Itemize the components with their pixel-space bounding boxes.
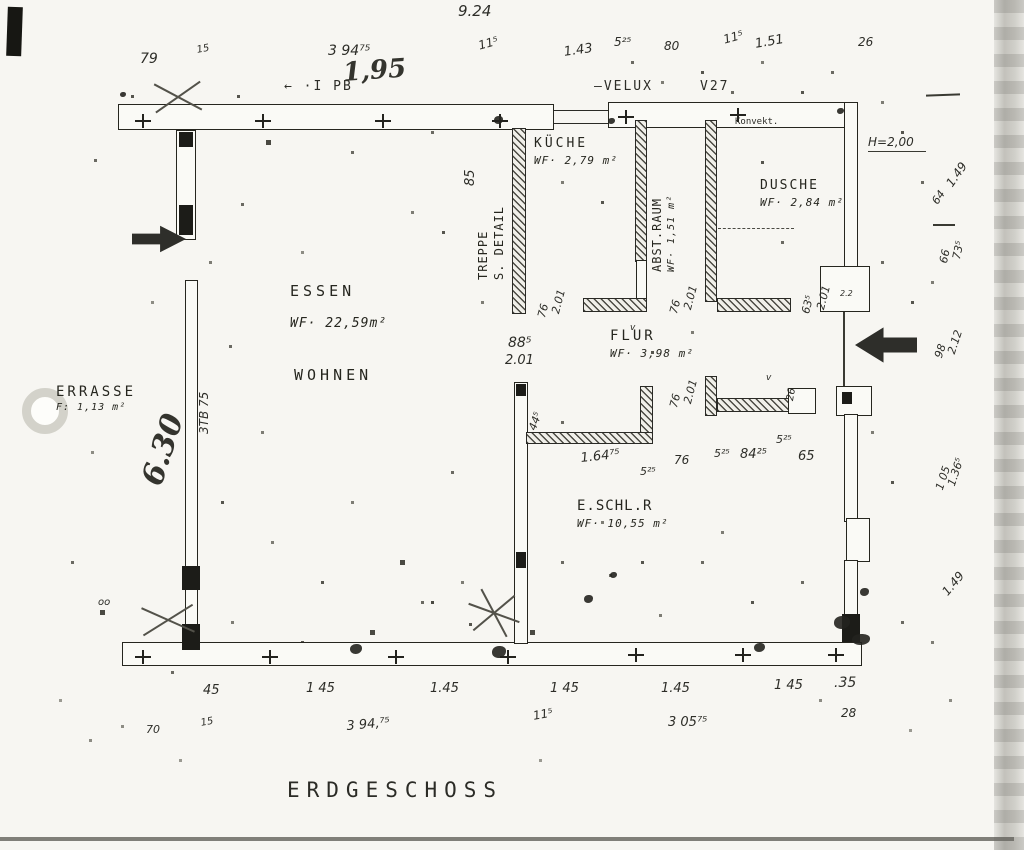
dimension-label: 1.64⁷⁵ (580, 448, 621, 465)
room-label-treppe: TREPPE S. DETAIL (476, 206, 506, 280)
dimension-label: 79 (140, 52, 158, 66)
room-name-essen: ESSEN (290, 282, 387, 300)
x-mark (152, 78, 204, 114)
cross-mark (375, 114, 391, 128)
dimension-label: 70 (146, 724, 160, 735)
scan-corner-mark (6, 7, 23, 56)
room-area-kueche: WF· 2,79 m² (534, 154, 618, 167)
wall-right-middle (844, 414, 858, 522)
dimension-label: 5²⁵ (614, 36, 631, 48)
wall-flur-br-vert (705, 376, 717, 416)
room-area-essen: WF· 22,59m² (290, 316, 387, 331)
dimension-label: 2.01 (682, 378, 699, 405)
dimension-label: 1.45 (430, 682, 459, 695)
wall-cap (516, 552, 526, 568)
scribble-mark (468, 588, 520, 636)
wall-flur-br (717, 398, 789, 412)
wall-kueche-foot (636, 260, 647, 300)
cross-mark (628, 648, 644, 662)
dimension-label: H=2,00 (868, 136, 914, 148)
cross-mark (735, 648, 751, 662)
room-area-flur: WF· 3,98 m² (610, 347, 694, 360)
wall-cap (516, 384, 526, 396)
leader-line (868, 151, 926, 152)
dimension-label: 11⁵ (722, 29, 745, 46)
room-name-flur: FLUR (610, 328, 694, 344)
dimension-label: —VELUX (594, 80, 653, 93)
dimension-label: 1.43 (563, 42, 593, 59)
dimension-label: 64 (930, 189, 947, 207)
x-mark (140, 598, 196, 640)
room-label-eschlr: E.SCHL.R WF· 10,55 m² (577, 498, 668, 530)
dimension-label: 1 45 (306, 682, 335, 695)
dimension-label: 15 (196, 44, 210, 56)
dimension-label: 1 45 (774, 679, 803, 692)
room-area-abstraum: WF· 1,51 m² (666, 195, 677, 272)
room-label-kueche: KÜCHE WF· 2,79 m² (534, 136, 618, 167)
scan-noise (0, 0, 1, 1)
dimension-label: 3TB 75 (198, 392, 210, 434)
dimension-label: 11⁵ (532, 707, 554, 722)
scan-bottom-edge (0, 837, 1014, 841)
room-label-wohnen: WOHNEN (294, 366, 372, 384)
room-name-terrasse: ERRASSE (56, 384, 136, 400)
dimension-label: 11⁵ (477, 35, 500, 52)
dimension-label: 2.01 (682, 284, 699, 311)
cross-mark (262, 650, 278, 664)
room-area-eschlr: WF· 10,55 m² (577, 517, 668, 530)
room-name-wohnen: WOHNEN (294, 366, 372, 384)
dimension-label: 6.30 (138, 410, 189, 489)
dimension-label: 45 (203, 684, 220, 697)
dimension-label: .35 (834, 676, 856, 690)
dimension-label: 63⁵ (800, 294, 815, 315)
room-label-essen: ESSEN WF· 22,59m² (290, 282, 387, 331)
wall-abstraum-dusche (705, 120, 717, 302)
cross-mark (730, 108, 746, 122)
wall-eschlr-top (526, 432, 653, 444)
ink-blob (860, 588, 869, 596)
cross-mark (255, 114, 271, 128)
ink-blob (852, 634, 870, 645)
dimension-label: 85 (464, 169, 477, 186)
room-area-dusche: WF· 2,84 m² (760, 196, 844, 209)
dimension-label: 1.51 (754, 33, 785, 51)
room-label-dusche: DUSCHE WF· 2,84 m² (760, 178, 844, 209)
dimension-label: 3 94,⁷⁵ (346, 716, 390, 733)
cross-mark (828, 648, 844, 662)
room-label-terrasse: ERRASSE F: 1,13 m² (56, 384, 136, 413)
room-name-eschlr: E.SCHL.R (577, 498, 668, 514)
dimension-label: 65 (798, 450, 815, 463)
wall-right-lower (844, 560, 858, 620)
wall-dusche-bottom (717, 298, 791, 312)
dimension-label: 1.45 (661, 682, 690, 695)
ink-blob (610, 572, 617, 578)
wall-stairs (512, 128, 526, 314)
wall-right-upper (844, 102, 858, 270)
scan-edge-strip (994, 0, 1024, 850)
dimension-label: 15 (200, 717, 214, 729)
entrance-arrow-right (855, 324, 917, 366)
room-name-kueche: KÜCHE (534, 136, 618, 151)
dimension-label: 2.2 (840, 290, 853, 298)
scanned-floorplan: ESSEN WF· 22,59m² WOHNEN KÜCHE WF· 2,79 … (0, 0, 1024, 850)
room-label-flur: FLUR WF· 3,98 m² (610, 328, 694, 360)
plan-title: ERDGESCHOSS (287, 778, 503, 802)
window-left-main (185, 280, 198, 648)
dimension-label: 5²⁵ (640, 466, 656, 477)
tick-line (926, 93, 960, 96)
dimension-label: 44⁵ (527, 411, 544, 432)
dimension-label: 73⁵ (951, 240, 966, 260)
dimension-label: 5²⁵ (776, 434, 792, 445)
dimension-label: 1 45 (550, 682, 579, 695)
cross-mark (135, 650, 151, 664)
dimension-label: v (630, 324, 635, 333)
treppe-line1: TREPPE (476, 206, 490, 280)
window-cap (179, 205, 193, 235)
treppe-line2: S. DETAIL (492, 206, 506, 280)
wall-kueche-abstraum (635, 120, 647, 262)
tick-line (933, 224, 955, 226)
cross-mark (500, 650, 516, 664)
dimension-label: V27 (700, 80, 729, 93)
window-cap (182, 566, 200, 590)
cross-mark (135, 114, 151, 128)
dimension-label: oo (98, 598, 110, 608)
window-cap (179, 132, 193, 147)
dimension-label: 1,95 (342, 56, 407, 86)
dimension-label: 2.12 (946, 329, 964, 356)
dimension-label: 2.01 (550, 288, 567, 315)
cross-mark (388, 650, 404, 664)
dimension-label: 3 05⁷⁵ (668, 716, 707, 729)
wall-flur-topleft (583, 298, 647, 312)
dimension-label: 1.49 (940, 570, 966, 598)
entry-door-line (843, 312, 845, 390)
pillar-right (846, 518, 870, 562)
dimension-label: 26 (858, 36, 873, 48)
dimension-label: 84²⁵ (740, 448, 767, 461)
room-area-terrasse: F: 1,13 m² (56, 402, 136, 413)
dimension-label: 1.49 (944, 160, 969, 189)
dimension-label: 1.36⁵ (946, 457, 965, 488)
dimension-label: 2.01 (505, 354, 534, 367)
dimension-label: 9.24 (458, 4, 491, 19)
dimension-label: v (766, 374, 771, 383)
post-right-jog (842, 392, 852, 404)
dimension-label: 28 (841, 707, 856, 719)
cross-mark (618, 110, 634, 124)
room-name-abstraum: ABST.RAUM (650, 195, 664, 272)
dimension-label: ← ·I PB (284, 80, 353, 93)
ink-blob (120, 92, 126, 97)
wall-eschlr-vert (640, 386, 653, 434)
shower-curtain-line (718, 228, 794, 229)
dimension-label: 88⁵ (508, 336, 531, 350)
dimension-label: 80 (664, 40, 679, 52)
window-top (554, 110, 610, 124)
room-name-dusche: DUSCHE (760, 178, 844, 193)
dimension-label: 5²⁵ (714, 448, 730, 459)
room-label-abstraum: ABST.RAUM WF· 1,51 m² (650, 195, 677, 272)
ink-blob (584, 595, 593, 603)
dimension-label: 76 (674, 454, 689, 466)
cross-mark (492, 114, 508, 128)
